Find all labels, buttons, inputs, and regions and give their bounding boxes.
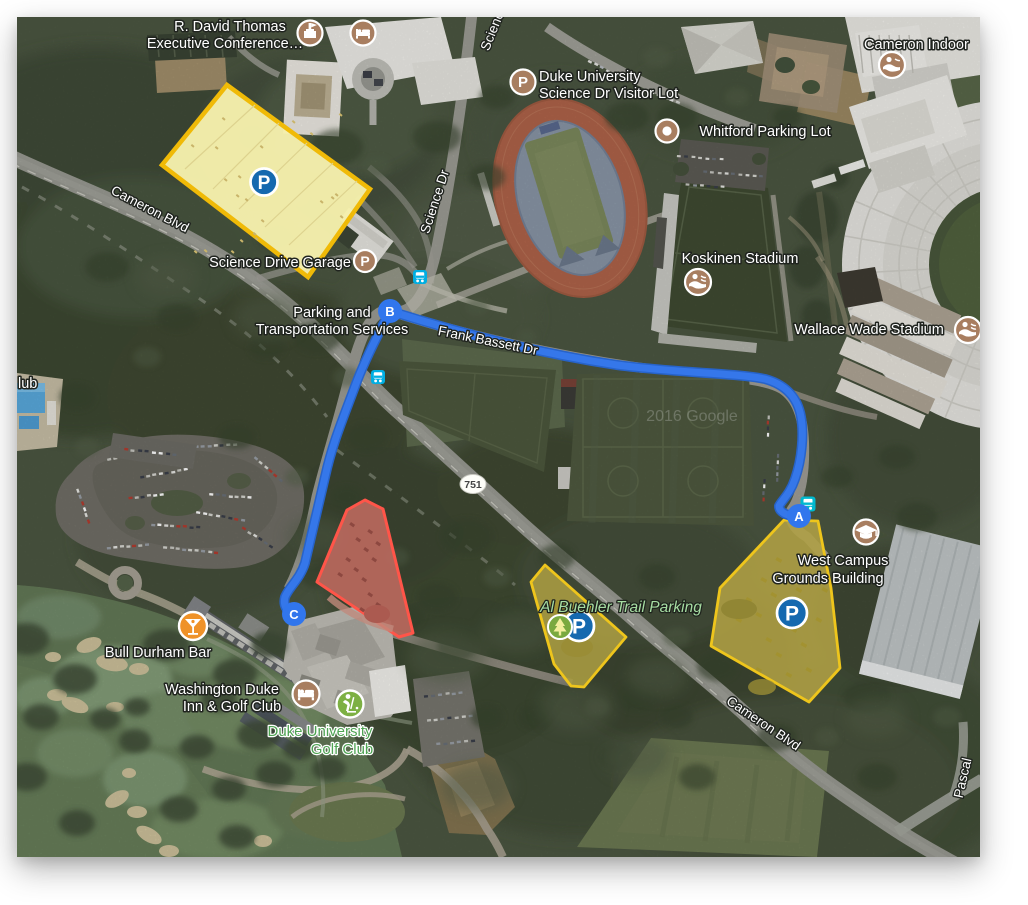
svg-text:Wallace Wade Stadium: Wallace Wade Stadium [794,322,944,338]
svg-text:Parking and: Parking and [293,305,370,321]
svg-text:Grounds Building: Grounds Building [772,571,883,587]
svg-text:P: P [258,173,271,194]
svg-text:P: P [785,603,799,626]
svg-text:West Campus: West Campus [798,553,889,569]
svg-text:Duke University: Duke University [539,69,641,85]
svg-text:B: B [385,304,394,319]
svg-text:Bull Durham Bar: Bull Durham Bar [105,645,212,661]
svg-text:Cameron Indoor: Cameron Indoor [864,37,969,53]
svg-text:Washington Duke: Washington Duke [165,682,279,698]
svg-text:Golf Club: Golf Club [311,741,374,758]
svg-text:Al Buehler Trail Parking: Al Buehler Trail Parking [539,599,702,616]
svg-text:751: 751 [464,479,482,491]
svg-text:Transportation Services: Transportation Services [256,322,409,338]
svg-text:R. David Thomas: R. David Thomas [174,19,286,35]
svg-text:lub: lub [18,376,37,392]
svg-text:Duke University: Duke University [267,723,373,740]
svg-text:Koskinen Stadium: Koskinen Stadium [682,251,799,267]
svg-text:C: C [289,607,299,622]
svg-text:P: P [360,253,369,269]
svg-text:Science Drive Garage: Science Drive Garage [209,255,351,271]
svg-text:A: A [794,509,804,524]
svg-text:Science Dr Visitor Lot: Science Dr Visitor Lot [539,86,678,102]
svg-text:Whitford Parking Lot: Whitford Parking Lot [699,124,830,140]
svg-text:P: P [572,616,586,639]
svg-text:P: P [518,74,528,91]
svg-text:Executive Conference…: Executive Conference… [147,36,303,52]
svg-text:Inn & Golf Club: Inn & Golf Club [183,699,281,715]
